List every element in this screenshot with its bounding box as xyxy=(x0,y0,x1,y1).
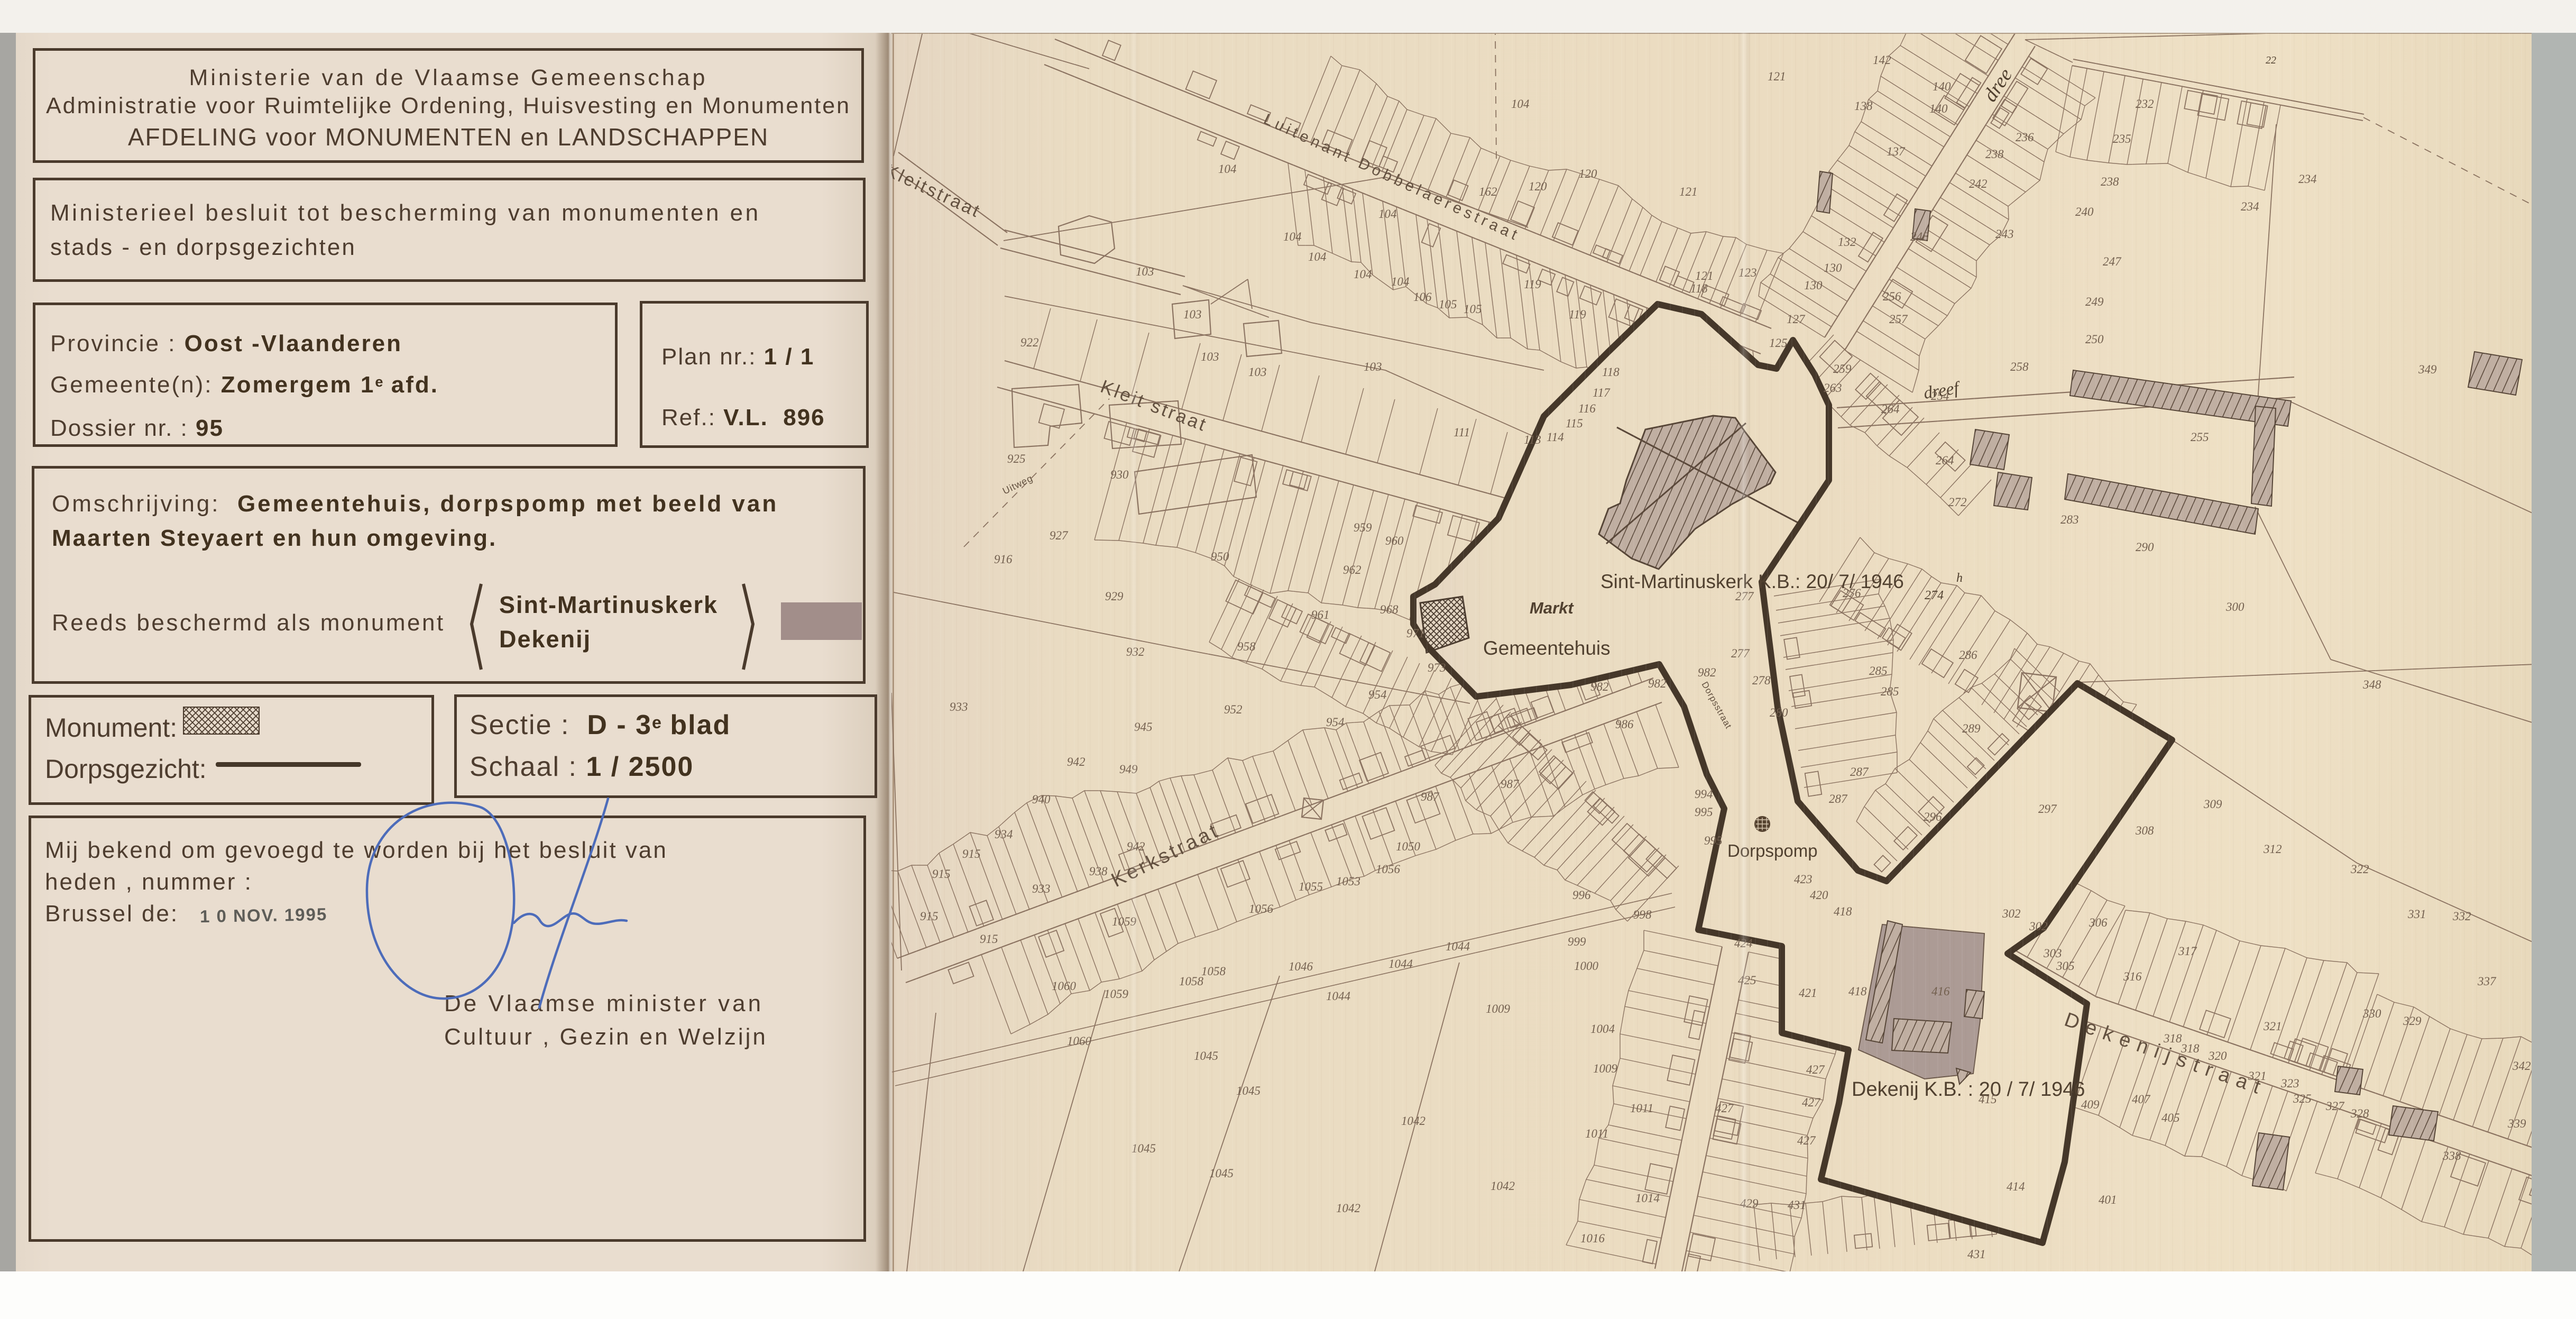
svg-text:290: 290 xyxy=(2136,541,2154,554)
svg-text:933: 933 xyxy=(950,700,968,713)
svg-text:954: 954 xyxy=(1326,716,1345,729)
svg-text:1045: 1045 xyxy=(1236,1084,1261,1097)
svg-text:287: 287 xyxy=(1829,792,1848,805)
svg-text:1014: 1014 xyxy=(1635,1192,1660,1205)
svg-text:247: 247 xyxy=(2103,255,2122,268)
svg-text:256: 256 xyxy=(1883,290,1901,303)
svg-text:1009: 1009 xyxy=(1486,1002,1511,1015)
svg-text:105: 105 xyxy=(1439,298,1457,311)
svg-text:285: 285 xyxy=(1881,685,1899,698)
svg-text:1046: 1046 xyxy=(1289,960,1313,973)
svg-text:323: 323 xyxy=(2280,1077,2299,1090)
svg-text:300: 300 xyxy=(2225,600,2244,613)
svg-text:427: 427 xyxy=(1797,1134,1816,1147)
svg-text:982: 982 xyxy=(1590,680,1609,693)
svg-text:258: 258 xyxy=(2010,360,2029,373)
svg-text:1042: 1042 xyxy=(1336,1202,1360,1215)
svg-text:118: 118 xyxy=(1602,365,1620,379)
svg-text:321: 321 xyxy=(2248,1069,2267,1083)
svg-text:235: 235 xyxy=(2113,132,2131,145)
svg-text:987: 987 xyxy=(1501,777,1520,791)
svg-text:995: 995 xyxy=(1695,805,1713,819)
svg-text:162: 162 xyxy=(1479,185,1497,198)
svg-text:950: 950 xyxy=(1211,550,1229,563)
svg-text:986: 986 xyxy=(1615,718,1634,731)
svg-text:339: 339 xyxy=(2507,1117,2526,1130)
svg-text:248: 248 xyxy=(1910,230,1929,243)
svg-text:114: 114 xyxy=(1547,430,1564,444)
svg-text:1004: 1004 xyxy=(1590,1022,1615,1036)
svg-text:1011: 1011 xyxy=(1630,1102,1653,1115)
svg-text:121: 121 xyxy=(1679,185,1698,198)
svg-text:959: 959 xyxy=(1354,521,1372,534)
svg-text:111: 111 xyxy=(1453,426,1470,439)
svg-text:420: 420 xyxy=(1810,889,1828,902)
svg-text:998: 998 xyxy=(1633,908,1652,921)
svg-text:236: 236 xyxy=(2016,131,2034,144)
svg-text:103: 103 xyxy=(1364,360,1382,373)
svg-text:142: 142 xyxy=(1873,53,1891,67)
svg-text:118: 118 xyxy=(1690,282,1708,295)
svg-text:401: 401 xyxy=(2099,1193,2117,1206)
svg-text:1058: 1058 xyxy=(1179,975,1204,988)
svg-text:1009: 1009 xyxy=(1593,1062,1618,1075)
svg-text:1056: 1056 xyxy=(1249,902,1274,915)
svg-text:137: 137 xyxy=(1887,145,1906,158)
svg-text:119: 119 xyxy=(1569,308,1586,321)
svg-text:349: 349 xyxy=(2418,363,2437,376)
svg-text:407: 407 xyxy=(2132,1093,2151,1106)
svg-text:416: 416 xyxy=(1931,985,1950,998)
svg-text:125: 125 xyxy=(1769,336,1788,350)
svg-text:982: 982 xyxy=(1648,677,1667,690)
svg-text:927: 927 xyxy=(1050,529,1069,542)
svg-text:274: 274 xyxy=(1925,589,1944,602)
svg-text:234: 234 xyxy=(2241,200,2259,213)
svg-text:120: 120 xyxy=(1529,180,1547,193)
svg-text:250: 250 xyxy=(2085,333,2104,346)
svg-text:320: 320 xyxy=(2208,1049,2227,1062)
svg-text:103: 103 xyxy=(1201,350,1219,363)
svg-text:996: 996 xyxy=(1572,889,1591,902)
svg-text:1055: 1055 xyxy=(1299,880,1323,893)
svg-text:960: 960 xyxy=(1385,534,1404,547)
svg-text:243: 243 xyxy=(1995,227,2014,241)
svg-text:104: 104 xyxy=(1308,250,1327,263)
svg-text:240: 240 xyxy=(2075,205,2094,218)
svg-text:1016: 1016 xyxy=(1580,1232,1605,1245)
svg-text:916: 916 xyxy=(994,553,1013,566)
svg-text:119: 119 xyxy=(1524,278,1541,291)
svg-text:242: 242 xyxy=(1969,177,1988,190)
svg-text:337: 337 xyxy=(2477,975,2497,988)
svg-text:409: 409 xyxy=(2081,1098,2100,1111)
svg-text:423: 423 xyxy=(1794,873,1813,886)
svg-text:968: 968 xyxy=(1380,603,1399,616)
svg-text:Uitweg: Uitweg xyxy=(1001,473,1035,497)
svg-text:103: 103 xyxy=(1183,308,1202,321)
svg-text:994: 994 xyxy=(1695,787,1713,801)
svg-text:318: 318 xyxy=(2163,1032,2182,1045)
svg-text:405: 405 xyxy=(2161,1111,2180,1124)
svg-text:254: 254 xyxy=(1931,389,1949,402)
svg-text:Dekenij K.B. : 20 / 7/ 1946: Dekenij K.B. : 20 / 7/ 1946 xyxy=(1852,1078,2085,1101)
svg-text:1059: 1059 xyxy=(1104,987,1129,1001)
svg-text:1042: 1042 xyxy=(1401,1114,1425,1128)
svg-text:915: 915 xyxy=(962,847,981,860)
svg-text:940: 940 xyxy=(1032,793,1051,806)
svg-text:938: 938 xyxy=(1089,865,1108,878)
svg-text:113: 113 xyxy=(1524,433,1541,446)
svg-text:264: 264 xyxy=(1881,402,1900,416)
svg-text:287: 287 xyxy=(1850,765,1869,778)
svg-text:962: 962 xyxy=(1343,563,1361,576)
svg-text:302: 302 xyxy=(2029,920,2048,933)
svg-text:Kleitstraat: Kleitstraat xyxy=(882,160,985,222)
svg-text:305: 305 xyxy=(2056,959,2075,973)
svg-text:418: 418 xyxy=(1848,985,1867,998)
svg-text:329: 329 xyxy=(2403,1014,2422,1028)
svg-text:348: 348 xyxy=(2362,678,2381,691)
svg-text:140: 140 xyxy=(1933,80,1951,93)
svg-text:121: 121 xyxy=(1768,70,1786,83)
svg-text:120: 120 xyxy=(1579,167,1597,180)
svg-text:1058: 1058 xyxy=(1201,965,1226,978)
svg-text:132: 132 xyxy=(1838,235,1856,249)
svg-text:427: 427 xyxy=(1806,1063,1825,1076)
svg-text:285: 285 xyxy=(1869,664,1888,677)
svg-text:1060: 1060 xyxy=(1052,979,1077,993)
svg-text:318: 318 xyxy=(2181,1042,2200,1055)
svg-text:999: 999 xyxy=(1568,935,1586,948)
svg-text:103: 103 xyxy=(1248,365,1267,379)
svg-text:431: 431 xyxy=(1967,1248,1986,1261)
svg-text:954: 954 xyxy=(1368,688,1387,701)
svg-text:1042: 1042 xyxy=(1491,1179,1515,1193)
svg-text:dree: dree xyxy=(1979,65,2017,106)
svg-text:1000: 1000 xyxy=(1574,959,1599,973)
svg-text:922: 922 xyxy=(1020,336,1039,349)
svg-text:238: 238 xyxy=(2101,175,2119,188)
svg-text:418: 418 xyxy=(1834,905,1852,918)
svg-text:952: 952 xyxy=(1224,703,1243,716)
svg-text:278: 278 xyxy=(1752,674,1771,687)
svg-text:103: 103 xyxy=(1136,265,1154,278)
svg-text:421: 421 xyxy=(1799,986,1817,1000)
svg-text:104: 104 xyxy=(1391,275,1410,288)
svg-text:929: 929 xyxy=(1105,590,1124,603)
svg-text:332: 332 xyxy=(2452,910,2471,923)
svg-text:104: 104 xyxy=(1378,207,1397,221)
svg-text:121: 121 xyxy=(1695,269,1714,282)
svg-text:322: 322 xyxy=(2350,863,2369,876)
svg-text:259: 259 xyxy=(1833,362,1852,375)
svg-text:297: 297 xyxy=(2038,802,2057,816)
svg-text:h: h xyxy=(1956,571,1963,585)
svg-text:Dekenijstraat: Dekenijstraat xyxy=(2062,1009,2270,1101)
svg-text:338: 338 xyxy=(2442,1149,2461,1162)
svg-text:Markt: Markt xyxy=(1530,599,1574,617)
svg-text:973: 973 xyxy=(1428,661,1446,674)
svg-text:255: 255 xyxy=(2191,430,2209,444)
svg-text:312: 312 xyxy=(2263,842,2282,856)
svg-text:414: 414 xyxy=(2007,1180,2025,1193)
svg-text:316: 316 xyxy=(2123,970,2142,983)
svg-text:1060: 1060 xyxy=(1067,1034,1092,1048)
svg-text:1011: 1011 xyxy=(1585,1127,1608,1140)
svg-text:104: 104 xyxy=(1218,162,1237,176)
svg-text:263: 263 xyxy=(1824,381,1842,395)
svg-text:104: 104 xyxy=(1511,97,1530,111)
svg-text:987: 987 xyxy=(1421,790,1440,803)
svg-text:342: 342 xyxy=(2512,1059,2531,1073)
svg-text:961: 961 xyxy=(1311,608,1330,621)
svg-text:257: 257 xyxy=(1889,313,1908,326)
svg-text:427: 427 xyxy=(1715,1102,1734,1115)
svg-text:104: 104 xyxy=(1354,268,1372,281)
svg-text:431: 431 xyxy=(1788,1198,1806,1212)
svg-text:Luitenant Dobbelaerestraat: Luitenant Dobbelaerestraat xyxy=(1261,111,1523,245)
svg-text:930: 930 xyxy=(1110,468,1129,481)
svg-text:933: 933 xyxy=(1032,882,1051,895)
svg-text:982: 982 xyxy=(1698,666,1716,679)
svg-text:115: 115 xyxy=(1566,417,1583,430)
svg-text:915: 915 xyxy=(980,932,998,946)
svg-text:306: 306 xyxy=(2089,916,2108,929)
svg-text:915: 915 xyxy=(920,910,939,923)
svg-text:427: 427 xyxy=(1802,1096,1821,1109)
svg-text:1045: 1045 xyxy=(1194,1049,1218,1062)
svg-text:127: 127 xyxy=(1787,313,1806,326)
svg-text:308: 308 xyxy=(2135,824,2154,837)
svg-text:325: 325 xyxy=(2293,1092,2312,1105)
svg-text:280: 280 xyxy=(1770,706,1788,719)
svg-text:106: 106 xyxy=(1413,290,1432,304)
svg-text:328: 328 xyxy=(2350,1107,2369,1120)
svg-text:130: 130 xyxy=(1804,279,1823,292)
svg-text:415: 415 xyxy=(1979,1093,1997,1106)
svg-text:925: 925 xyxy=(1007,452,1026,465)
svg-text:331: 331 xyxy=(2407,908,2426,921)
svg-text:971: 971 xyxy=(1406,627,1425,640)
svg-text:958: 958 xyxy=(1237,640,1256,653)
svg-text:105: 105 xyxy=(1464,303,1482,316)
svg-text:104: 104 xyxy=(1283,230,1302,243)
svg-text:286: 286 xyxy=(1959,648,1977,662)
svg-text:1056: 1056 xyxy=(1376,863,1401,876)
svg-text:Gemeentehuis: Gemeentehuis xyxy=(1483,637,1611,659)
svg-text:1044: 1044 xyxy=(1446,940,1470,953)
svg-text:934: 934 xyxy=(995,828,1013,841)
svg-text:327: 327 xyxy=(2325,1100,2345,1113)
svg-text:22: 22 xyxy=(2266,54,2276,66)
svg-text:264: 264 xyxy=(1936,454,1954,467)
svg-text:272: 272 xyxy=(1948,496,1967,509)
svg-text:117: 117 xyxy=(1593,386,1611,399)
svg-text:330: 330 xyxy=(2362,1007,2381,1020)
svg-text:995: 995 xyxy=(1704,834,1723,847)
svg-text:296: 296 xyxy=(1924,810,1942,823)
svg-text:140: 140 xyxy=(1929,102,1948,115)
svg-text:276: 276 xyxy=(1843,587,1861,600)
svg-text:116: 116 xyxy=(1578,402,1596,415)
svg-text:249: 249 xyxy=(2085,295,2104,308)
svg-text:1044: 1044 xyxy=(1326,990,1350,1003)
svg-text:915: 915 xyxy=(932,867,951,881)
svg-text:1045: 1045 xyxy=(1209,1167,1234,1180)
svg-text:138: 138 xyxy=(1854,99,1873,113)
svg-text:130: 130 xyxy=(1824,261,1842,274)
svg-text:1053: 1053 xyxy=(1336,875,1360,888)
svg-text:309: 309 xyxy=(2203,798,2222,811)
svg-text:234: 234 xyxy=(2298,172,2317,186)
svg-text:303: 303 xyxy=(2043,947,2062,960)
svg-text:Kleit straat: Kleit straat xyxy=(1098,376,1210,436)
svg-text:942: 942 xyxy=(1067,755,1085,768)
svg-text:232: 232 xyxy=(2136,97,2154,111)
svg-text:1044: 1044 xyxy=(1388,957,1413,970)
svg-text:289: 289 xyxy=(1962,722,1981,735)
svg-text:321: 321 xyxy=(2263,1020,2282,1033)
svg-text:317: 317 xyxy=(2178,945,2197,958)
svg-text:302: 302 xyxy=(2002,907,2021,920)
svg-text:1050: 1050 xyxy=(1396,840,1421,853)
svg-text:238: 238 xyxy=(1985,148,2004,161)
svg-text:283: 283 xyxy=(2060,513,2079,526)
